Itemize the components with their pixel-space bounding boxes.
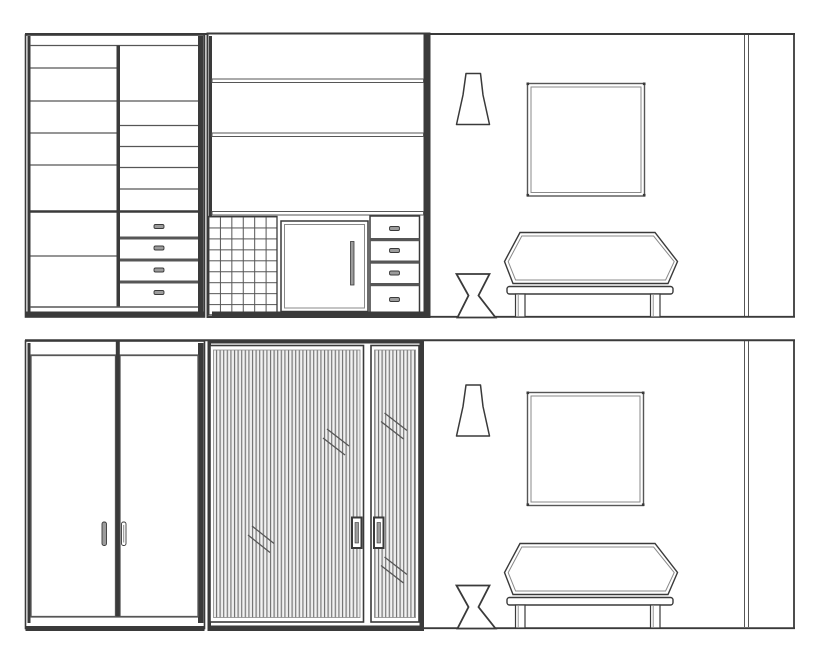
frame-corner-dot: [527, 83, 530, 86]
cabinet-handle-icon: [351, 242, 355, 286]
left-stile: [28, 343, 31, 623]
base-cabinet: [281, 221, 368, 317]
bench: [505, 233, 678, 318]
left-stile: [28, 36, 31, 312]
bench-back-outer: [505, 544, 678, 595]
bench-leg: [651, 605, 661, 628]
wall-section-bottom: [424, 340, 795, 629]
sliding-door-handle: [352, 518, 362, 549]
center-divider: [117, 46, 121, 308]
base-plinth: [26, 626, 205, 631]
handle-recess: [377, 523, 381, 544]
wall-frame: [527, 392, 645, 507]
bench: [505, 544, 678, 629]
hourglass-stool-icon: [457, 586, 496, 629]
middle-drawer-stack: [370, 216, 420, 315]
bench-seat-rail: [507, 287, 673, 295]
frame-corner-dot: [642, 503, 645, 506]
frame-corner-dot: [527, 392, 530, 395]
fluted-glass-narrow: [375, 350, 416, 618]
handle-recess: [355, 523, 359, 544]
base-plinth: [208, 626, 425, 632]
drawer-divider: [370, 238, 420, 241]
right-stile: [420, 340, 425, 631]
drawer-handle-icon: [390, 227, 400, 231]
drawer-divider: [370, 261, 420, 264]
frame-corner-dot: [527, 503, 530, 506]
elevation-drawing: [0, 0, 834, 653]
shelf-band: [212, 133, 424, 137]
left-wardrobe-closed: [26, 341, 205, 631]
bench-leg: [516, 605, 526, 628]
bench-seat-rail: [507, 598, 673, 606]
shelf-band: [212, 212, 424, 216]
bench-leg: [651, 294, 661, 317]
base-plinth: [212, 312, 424, 318]
top-elevation-panel: [25, 34, 795, 318]
drawer-handle-icon: [154, 246, 164, 250]
drawer-divider: [370, 283, 420, 286]
elevation-svg: [0, 0, 834, 653]
bench-leg: [516, 294, 526, 317]
drawer-divider: [120, 259, 198, 262]
bottom-elevation-panel: [25, 340, 795, 632]
frame-corner-dot: [643, 194, 646, 197]
hinged-door-left: [31, 356, 116, 617]
pendant-lamp-icon: [457, 74, 490, 125]
right-stile: [424, 34, 430, 318]
drawer-handle-icon: [154, 291, 164, 295]
fluted-glass-large: [214, 350, 361, 618]
drawer-handle-icon: [154, 225, 164, 229]
frame-outer: [528, 84, 645, 197]
sliding-door-handle: [374, 518, 384, 549]
frame-corner-dot: [642, 392, 645, 395]
wall-frame: [527, 83, 646, 197]
drawer-handle-icon: [390, 271, 400, 275]
drawer-handle-icon: [154, 268, 164, 272]
drawer-handle-icon: [390, 298, 400, 302]
cabinet-door: [281, 221, 368, 312]
drawer-divider: [120, 281, 198, 284]
frame-corner-dot: [643, 83, 646, 86]
sliding-door-unit: [208, 340, 425, 632]
hinged-door-right: [120, 356, 198, 617]
pendant-lamp-icon: [457, 385, 490, 436]
middle-unit-open: [208, 34, 430, 318]
center-divider: [116, 341, 120, 617]
top-rail: [208, 340, 425, 344]
left-wardrobe-open: [26, 35, 205, 317]
bench-back-outer: [505, 233, 678, 284]
right-stile: [198, 36, 204, 312]
frame-corner-dot: [527, 194, 530, 197]
base-plinth: [26, 312, 205, 318]
shelf-band: [212, 79, 424, 83]
right-stile: [198, 343, 204, 623]
hourglass-stool-icon: [457, 274, 496, 318]
wardrobe-carcass: [26, 35, 205, 317]
drawer-divider: [120, 237, 198, 240]
drawer-handle-icon: [390, 249, 400, 253]
door-handle-icon: [102, 522, 107, 546]
cubby-grid: [209, 217, 278, 316]
frame-outer: [528, 393, 644, 506]
wall-section-top: [424, 34, 795, 318]
cubby-cells: [209, 217, 278, 316]
